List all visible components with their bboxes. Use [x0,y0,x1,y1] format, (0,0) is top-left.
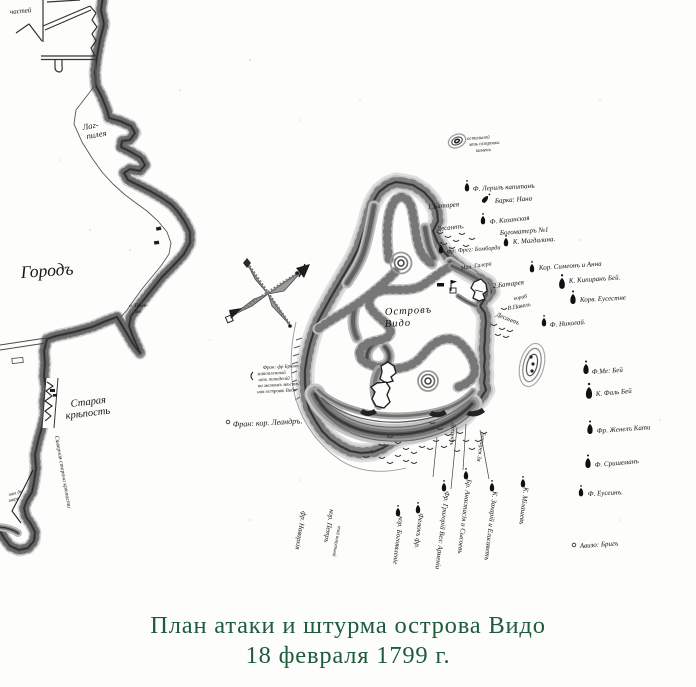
svg-text:Бр. Анастасія и Сысоевъ: Бр. Анастасія и Сысоевъ [456,478,473,555]
svg-text:Фр. Женелъ Кати: Фр. Женелъ Кати [597,423,652,435]
svg-text:Фран: фр Брюнъ: Фран: фр Брюнъ [263,364,299,371]
svg-text:Сѣверная сторона крѣпости: Сѣверная сторона крѣпости [53,435,72,508]
svg-text:Ф.Ме: Бей: Ф.Ме: Бей [592,366,624,376]
svg-text:К. Кипиранъ Бей.: К. Кипиранъ Бей. [568,273,621,285]
svg-text:Фран: кор. Леандръ.: Фран: кор. Леандръ. [233,416,303,429]
svg-text:мо: мо [134,309,142,315]
svg-text:К. Фаль Бей: К. Фаль Бей [594,387,632,398]
svg-text:Кор. Симеонъ и Анна: Кор. Симеонъ и Анна [538,260,603,272]
svg-text:Городъ: Городъ [19,258,74,282]
svg-text:кор. Богоявленіе: кор. Богоявленіе [391,516,405,565]
svg-text:камень: камень [476,148,492,154]
svg-text:В.Павелъ: В.Павелъ [507,302,531,312]
svg-text:пилея: пилея [86,128,108,141]
svg-text:Корв. Еусестне: Корв. Еусестне [579,294,626,304]
svg-text:Ф. Лерилъ капитанъ: Ф. Лерилъ капитанъ [473,182,535,193]
svg-text:частей: частей [9,6,32,16]
svg-text:фр. Навархія: фр. Навархія [293,511,308,550]
svg-text:Фр. Григорій Вел: Арменіи: Фр. Григорій Вел: Арменіи [433,491,451,570]
svg-text:Батарея 3я: Батарея 3я [475,431,486,462]
svg-text:Авизо: Бригъ: Авизо: Бригъ [579,539,619,550]
svg-text:этѣ островки: этѣ островки [469,141,500,148]
svg-text:2.Батарея: 2.Батарея [492,278,524,290]
svg-text:К. Захарій и Елисаветъ: К. Захарій и Елисаветъ [482,490,499,561]
svg-text:Десантъ: Десантъ [494,311,521,327]
svg-text:К. Мілашевъ: К. Мілашевъ [517,486,530,526]
svg-text:Барка: Нана: Барка: Нана [494,194,533,205]
svg-text:Видо: Видо [385,318,412,330]
svg-text:фр: Фрег: Бомборда: фр: Фрег: Бомборда [447,244,501,255]
svg-text:нов островѣ Видо: нов островѣ Видо [257,388,297,395]
svg-text:Десантъ.: Десантъ. [435,222,465,233]
svg-text:1.Батарея: 1.Батарея [427,200,459,211]
svg-text:Ф. Еусеинъ.: Ф. Еусеинъ. [588,488,624,498]
svg-text:Ф. Сришеманъ: Ф. Сришеманъ [594,457,639,469]
svg-text:Ф. Николай.: Ф. Николай. [549,318,586,329]
svg-text:К. Магдалина.: К. Магдалина. [512,235,556,246]
svg-text:Ф. Казанская: Ф. Казанская [489,214,530,226]
svg-text:Фелюкъ фр.: Фелюкъ фр. [413,513,425,549]
svg-text:кораб: кораб [513,293,528,302]
